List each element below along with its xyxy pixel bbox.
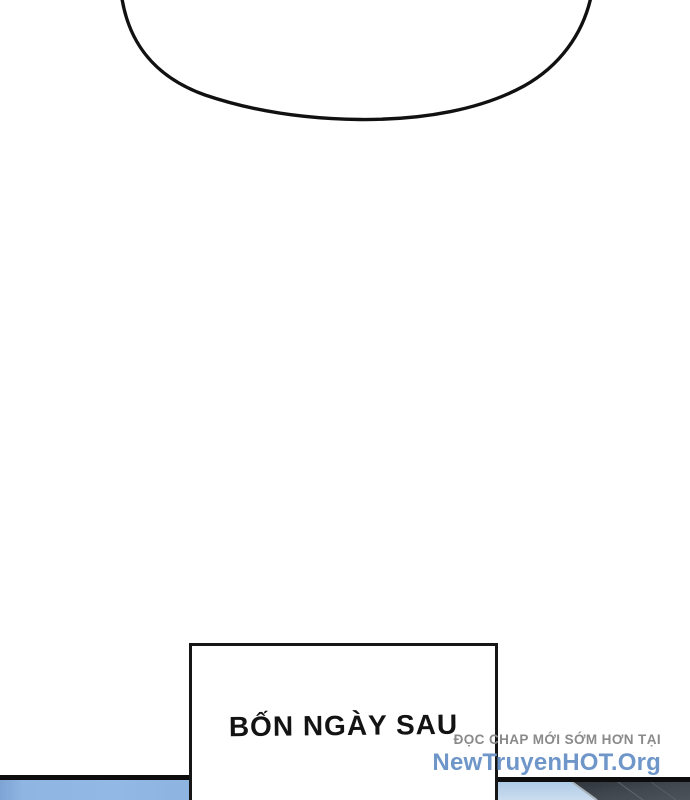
comic-page: BỐN NGÀY SAU ĐỌC CHAP MỚI SỚM HƠN TẠI Ne… xyxy=(0,0,690,800)
watermark-tagline: ĐỌC CHAP MỚI SỚM HƠN TẠI xyxy=(432,733,661,747)
speech-bubble xyxy=(0,0,690,150)
panel-sky-and-roof xyxy=(496,782,690,800)
caption-box: BỐN NGÀY SAU xyxy=(189,643,498,800)
bottom-panel-left-sky xyxy=(0,775,191,800)
speech-bubble-outline xyxy=(121,0,592,120)
watermark-sitename: NewTruyenHOT.Org xyxy=(432,751,661,775)
bottom-panel-right xyxy=(496,777,690,800)
watermark: ĐỌC CHAP MỚI SỚM HƠN TẠI NewTruyenHOT.Or… xyxy=(432,733,661,775)
